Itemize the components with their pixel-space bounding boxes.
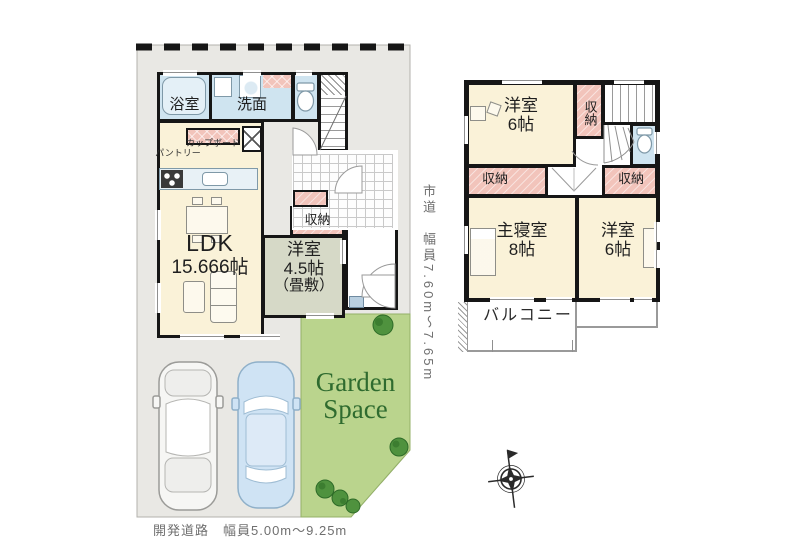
balcony-label: バルコニー xyxy=(478,307,578,325)
ldk-size: 15.666帖 xyxy=(155,257,265,278)
detail-layer xyxy=(0,0,800,558)
entrance-door-arc xyxy=(362,275,395,308)
garden-space-label: Garden Space xyxy=(303,369,408,423)
toilet-icon-1f xyxy=(297,83,314,111)
master-label: 主寝室 8帖 xyxy=(466,221,578,259)
bedroom2-size: 6帖 xyxy=(578,240,658,259)
ldk-name: LDK xyxy=(155,231,265,257)
bedroom1-label: 洋室 6帖 xyxy=(468,96,574,134)
tatami-label: 洋室 4.5帖 （畳敷） xyxy=(262,240,346,295)
bath-label: 浴室 xyxy=(157,97,212,114)
bedroom2-name: 洋室 xyxy=(578,221,658,240)
east-road-label: 市道 幅員7.60m〜7.65m xyxy=(419,184,438,524)
cupboard-label: カップボード xyxy=(182,138,244,148)
floor-plan-canvas: 浴室 洗面 カップボード パントリー LDK 15.666帖 収納 洋室 4.5… xyxy=(0,0,800,558)
garden-word1: Garden xyxy=(303,369,408,396)
toilet-icon-2f xyxy=(637,128,652,153)
closet2-top-label: 収納 xyxy=(582,90,597,136)
south-road-label: 開発道路 幅員5.00m〜9.25m xyxy=(153,520,347,539)
hall-door-arc xyxy=(335,166,362,193)
pantry-label: パントリー xyxy=(152,148,204,158)
tatami-size: 4.5帖 xyxy=(262,259,346,278)
ldk-label: LDK 15.666帖 xyxy=(155,231,265,278)
washroom-label: 洗面 xyxy=(212,97,292,114)
garden-word2: Space xyxy=(303,396,408,423)
stairs-door-arc xyxy=(293,128,317,155)
master-name: 主寝室 xyxy=(466,221,578,240)
closet2-left-label: 収納 xyxy=(466,172,524,187)
bedroom1-name: 洋室 xyxy=(468,96,574,115)
bedroom2-label: 洋室 6帖 xyxy=(578,221,658,259)
bedroom1-size: 6帖 xyxy=(468,115,574,134)
closet2-right-label: 収納 xyxy=(604,172,658,187)
tatami-note: （畳敷） xyxy=(262,278,346,295)
tatami-name: 洋室 xyxy=(262,240,346,259)
master-size: 8帖 xyxy=(466,240,578,259)
closet-1f-label: 収納 xyxy=(290,213,345,228)
